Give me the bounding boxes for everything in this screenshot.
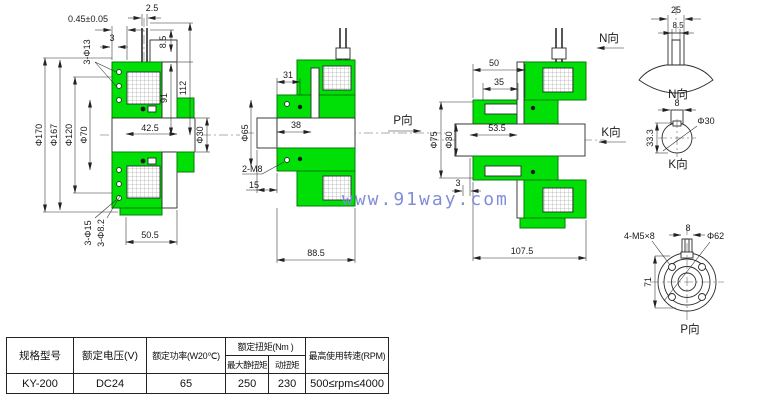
dim-phi75: Φ75	[429, 131, 439, 148]
dim-35: 35	[494, 77, 504, 87]
dim-holes-13: 3-Φ13	[82, 39, 92, 64]
dim-phi30-bore: Φ30	[444, 131, 454, 148]
p-arrow-label: P向	[393, 113, 412, 127]
dim-15: 15	[249, 180, 259, 190]
p-detail-title: P向	[680, 322, 699, 335]
watermark-text: www.91way.com	[342, 189, 509, 210]
header-torque: 额定扭矩(Nm )	[226, 338, 306, 356]
dim-50-5: 50.5	[141, 230, 159, 240]
dim-2-5: 2.5	[146, 3, 159, 13]
spec-table: 规格型号 额定电压(V) 额定功率(W20℃) 额定扭矩(Nm ) 最高使用转速…	[6, 337, 389, 394]
dim-71: 71	[643, 277, 653, 287]
dim-phi167: Φ167	[49, 124, 59, 146]
dim-8-5-key: 8.5	[672, 21, 684, 30]
dim-phi30-shaft: Φ30	[697, 116, 714, 126]
dim-50: 50	[489, 58, 499, 68]
k-arrow-label: K向	[601, 125, 620, 139]
dim-screws: 4-M5×8	[624, 231, 655, 241]
dim-tol: 0.45±0.05	[68, 14, 108, 24]
dim-8-5: 8.5	[158, 36, 168, 49]
dim-38: 38	[291, 120, 301, 130]
n-detail-view: 25 8.5 N向	[639, 5, 713, 101]
dim-3: 3	[109, 33, 114, 43]
header-static-torque: 最大静扭矩	[226, 356, 269, 374]
dim-2-M8: 2-M8	[242, 164, 263, 174]
dim-phi120: Φ120	[64, 124, 74, 146]
header-dynamic-torque: 动扭矩	[269, 356, 306, 374]
cell-dynamic-torque: 230	[269, 374, 306, 394]
dim-3-offset: 3	[455, 178, 460, 188]
dim-phi70: Φ70	[79, 126, 89, 143]
section-view-middle: 31 38 Φ65 2-M8 15 88.5	[240, 28, 445, 263]
k-detail-view: 8 Φ30 33.3 K向	[645, 98, 715, 171]
dim-112: 112	[178, 81, 188, 95]
dim-88-5: 88.5	[307, 248, 325, 258]
k-detail-title: K向	[668, 157, 687, 171]
dim-8-key: 8	[674, 98, 679, 108]
technical-drawing-page: 0.45±0.05 3-Φ13 3 2.5 8.5 91 112 Φ30 42.…	[0, 0, 761, 402]
dim-33-3: 33.3	[645, 129, 655, 147]
p-direction-arrow: P向	[388, 113, 421, 131]
n-direction-arrow: N向	[597, 31, 624, 48]
dim-holes-8-2: 3-Φ8.2	[96, 219, 106, 247]
dim-107-5: 107.5	[511, 246, 534, 256]
header-model: 规格型号	[7, 338, 74, 374]
dim-25: 25	[671, 5, 681, 15]
dim-91: 91	[159, 93, 169, 103]
dim-42-5: 42.5	[141, 123, 159, 133]
section-view-right: 50 35 53.5 Φ75 Φ30 3 107.5	[429, 28, 605, 261]
header-speed: 最高使用转速(RPM)	[306, 338, 389, 374]
cell-power: 65	[147, 374, 226, 394]
n-arrow-label: N向	[599, 31, 619, 45]
dim-phi30: Φ30	[195, 126, 205, 143]
dim-31: 31	[283, 70, 293, 80]
dim-phi62: Φ62	[707, 231, 724, 241]
drawing-canvas: 0.45±0.05 3-Φ13 3 2.5 8.5 91 112 Φ30 42.…	[0, 0, 761, 335]
dim-phi170: Φ170	[34, 124, 44, 146]
k-direction-arrow: K向	[599, 125, 626, 142]
cell-model: KY-200	[7, 374, 74, 394]
dim-8-stub: 8	[685, 223, 690, 233]
dim-phi65: Φ65	[240, 124, 250, 141]
section-view-front: 0.45±0.05 3-Φ13 3 2.5 8.5 91 112 Φ30 42.…	[34, 3, 240, 247]
cell-voltage: DC24	[74, 374, 147, 394]
header-voltage: 额定电压(V)	[74, 338, 147, 374]
cell-speed: 500≤rpm≤4000	[306, 374, 389, 394]
cell-static-torque: 250	[226, 374, 269, 394]
dim-53-5: 53.5	[488, 123, 506, 133]
header-power: 额定功率(W20℃)	[147, 338, 226, 374]
p-detail-view: 8 4-M5×8 Φ62 71 P向	[624, 223, 724, 335]
dim-holes-15: 3-Φ15	[83, 220, 93, 245]
